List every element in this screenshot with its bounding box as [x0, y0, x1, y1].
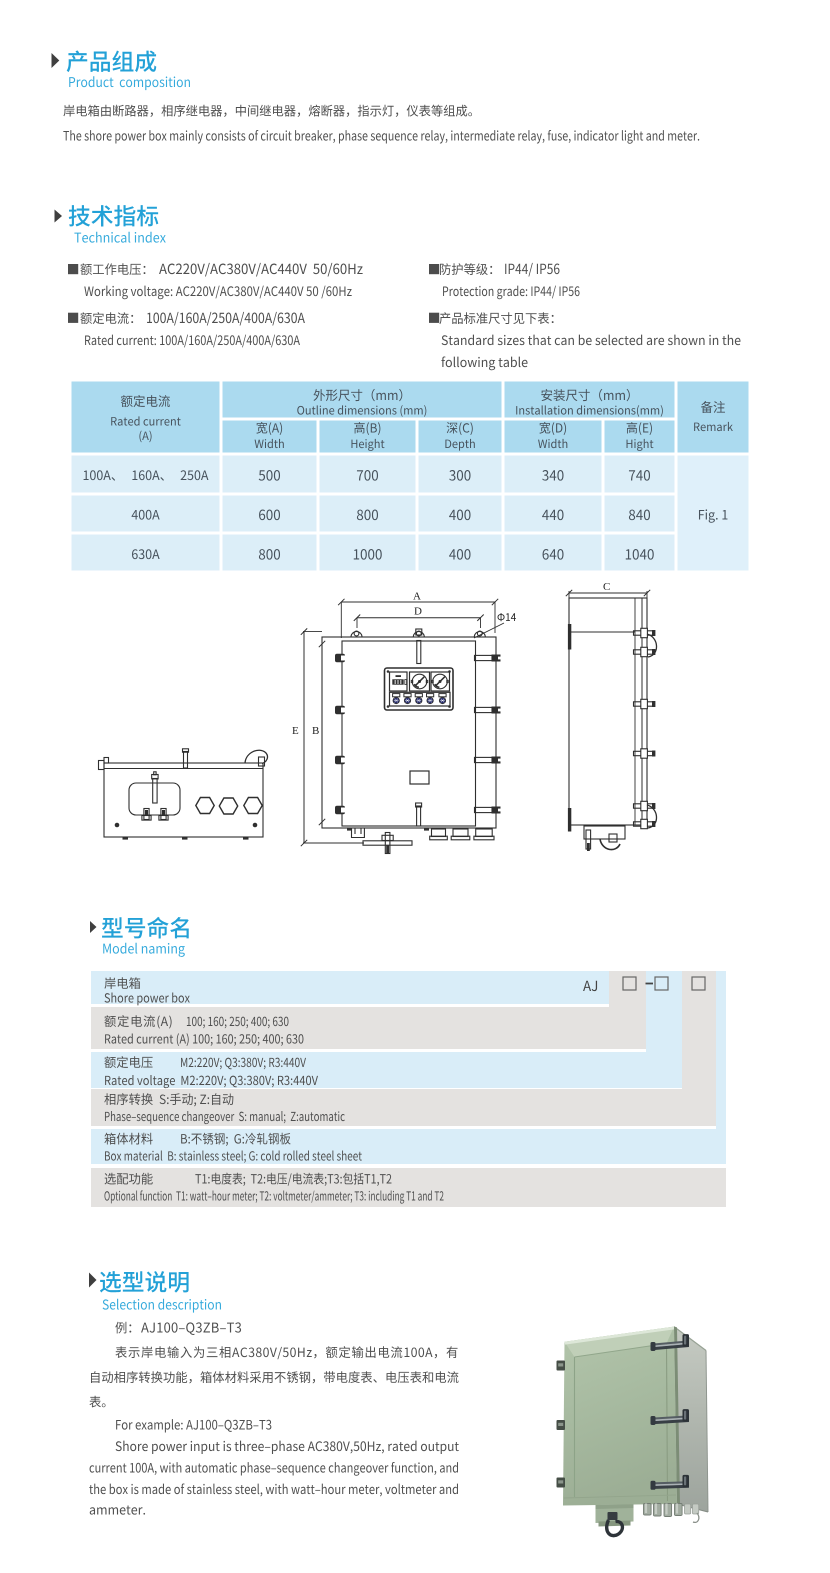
svg-text:E: E: [292, 725, 299, 737]
svg-text:A: A: [413, 591, 421, 603]
svg-text:C: C: [603, 581, 610, 593]
svg-text:D: D: [414, 606, 422, 618]
svg-text:B: B: [312, 725, 319, 737]
